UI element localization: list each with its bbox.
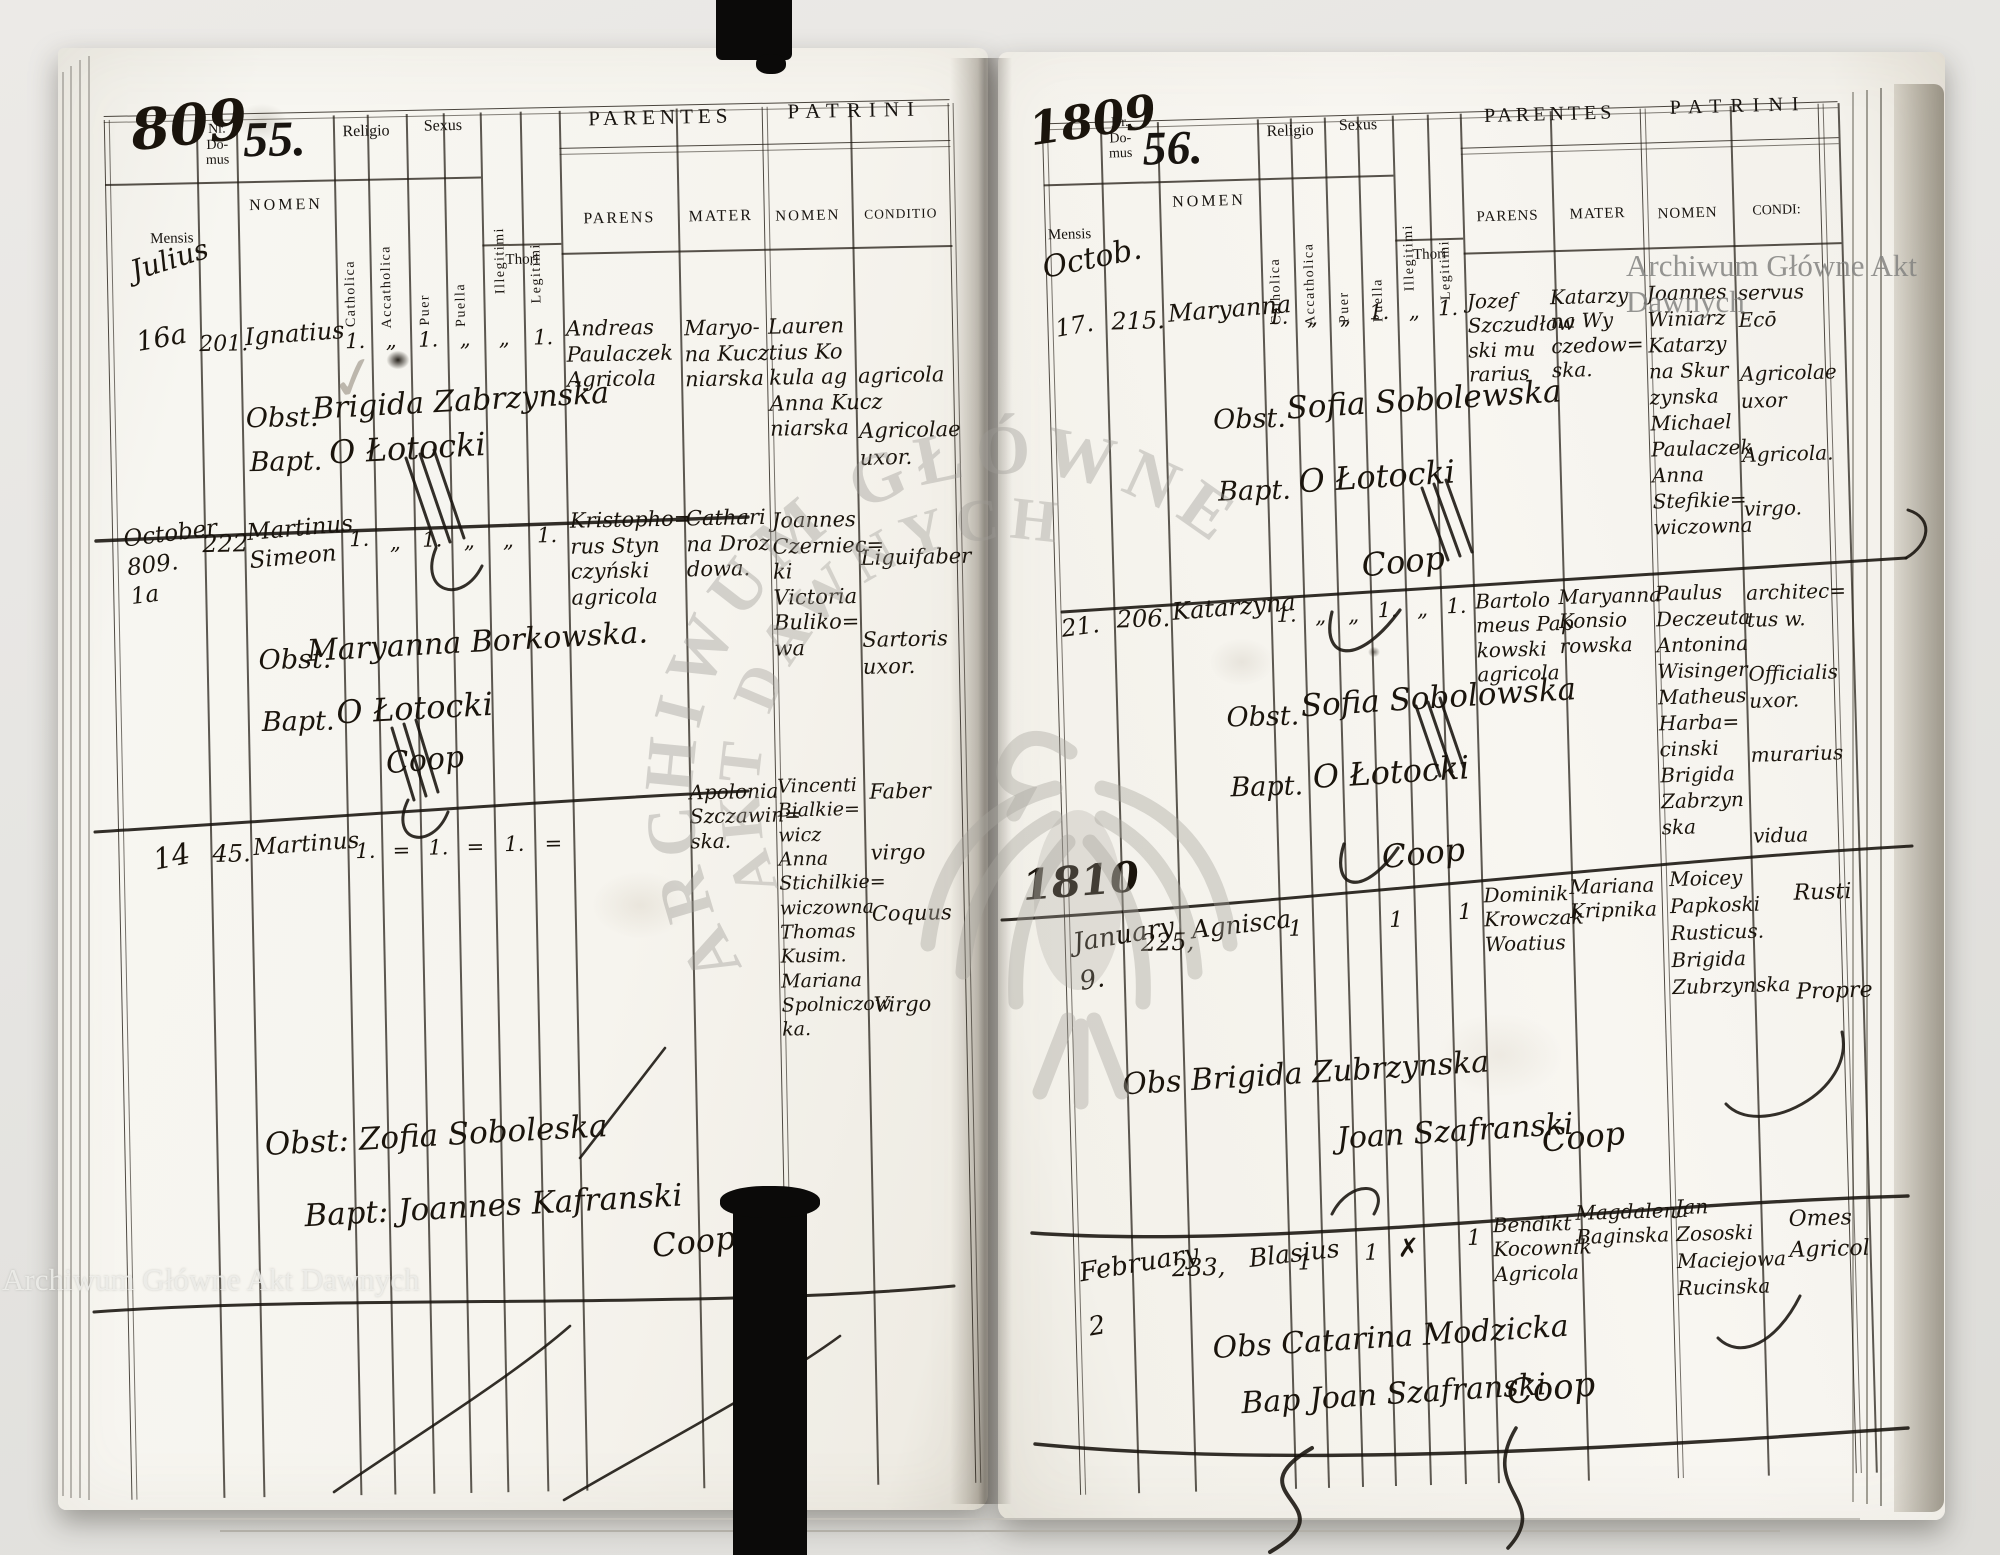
mark-puer: 1.: [413, 327, 444, 353]
entry-dies: 14: [150, 836, 193, 878]
mark-puer: 1.: [423, 835, 454, 861]
left-page-table: 809 Nr. Do- mus 55. Religio Sexus Illegi…: [99, 44, 1028, 1522]
mark-illegitimi: „: [1407, 597, 1438, 623]
obstetrix-label: Obst.: [245, 402, 318, 436]
col-header-patrini-nomen: NOMEN: [1642, 204, 1732, 223]
book-spine-top-nub: [756, 54, 786, 74]
right-page-table: 1809 Nr. Do- mus 56. Religio Sexus Illeg…: [998, 34, 1983, 1515]
entry-house-number: 201.: [199, 331, 249, 359]
entry-patrini-names: Paulus Deczeuta Antonina Wisinger Matheu…: [1655, 578, 1757, 841]
mark-legitimi: 1.: [1441, 594, 1472, 620]
obstetrix-label: Obst.: [1226, 700, 1300, 735]
entry-patrini-conditio: Faber virgo Coquus Virgo: [869, 775, 954, 1020]
baptizans-label: Bapt.: [1218, 475, 1292, 510]
mark-puella-cross: ✗: [1393, 1233, 1424, 1266]
col-header-nomen: NOMEN: [1159, 191, 1259, 212]
col-header-patrini: PATRINI: [1639, 92, 1838, 120]
column-line: [520, 112, 549, 1492]
mark-illegitimi: 1.: [499, 832, 530, 858]
book-spine-top: [716, 0, 792, 60]
mark-catholica: 1.: [1271, 602, 1302, 628]
entry-patrini-conditio: Omes Agricol: [1788, 1203, 1870, 1267]
entry-mater: Maryo- na Kucz niarska: [684, 315, 770, 394]
mark-puella: 1.: [1372, 598, 1403, 624]
record-number: 55.: [243, 110, 307, 167]
mark-catholica: 1.: [340, 329, 371, 355]
entry-house-number: 225,: [1140, 927, 1194, 958]
entry-mater: Cathari na Droz dowa.: [686, 505, 771, 583]
col-header-mater: MATER: [678, 207, 764, 227]
col-header-accatholica: Accatholica: [377, 192, 396, 328]
mark-legitimi: 1: [1450, 899, 1481, 927]
entry-patrini-names: Moicey Papkoski Rusticus. Brigida Zubrzy…: [1669, 863, 1791, 1001]
baptizans-label: Bapt.: [262, 706, 335, 740]
page-stack-edge: [70, 66, 72, 1498]
header-rule: [1044, 175, 1394, 186]
coop-signature: Coop: [1540, 1114, 1627, 1161]
coop-signature: Coop: [1505, 1364, 1597, 1414]
mark-illegitimi: „: [489, 326, 520, 352]
page-stack-bottom-edge: [140, 1518, 1860, 1520]
entry-mater: Magdalena Baginska: [1575, 1198, 1689, 1250]
mark-accatholica: „: [1305, 603, 1336, 629]
entry-house-number: 233,: [1171, 1253, 1225, 1284]
col-header-puer: Puer: [417, 259, 434, 325]
page-stack-bottom-edge: [220, 1530, 1780, 1532]
entry-dies: February 2: [1075, 1227, 1212, 1355]
mark-catholica: 1: [1280, 916, 1311, 944]
header-rule: [562, 245, 953, 254]
mark-catholica: 1.: [1263, 304, 1294, 330]
entry-name: Martinus Simeon: [246, 510, 357, 575]
mark-puella: 1: [1381, 907, 1412, 935]
header-rule: [1464, 242, 1842, 254]
page-stack-edge: [79, 60, 81, 1498]
entry-patrini-conditio: Rusti Propre: [1793, 875, 1873, 1009]
column-line: [480, 112, 509, 1492]
col-header-illegitimi: Illegitimi: [1398, 141, 1418, 291]
baptizans-name: O Łotocki: [328, 425, 487, 473]
coop-signature: Coop: [1380, 830, 1467, 877]
entry-patrini-conditio: servus Ecō Agricolae uxor Agricola. virg…: [1737, 277, 1840, 523]
col-header-sexus: Sexus: [406, 116, 480, 135]
mark-puella: „: [450, 327, 481, 353]
col-header-thori: Thori: [1395, 246, 1463, 265]
col-header-conditio: CONDI:: [1732, 202, 1820, 220]
year-divider: 1810: [1020, 851, 1141, 911]
mark-puer: „: [1330, 305, 1361, 331]
folio-number: 1809: [1025, 83, 1160, 158]
coop-signature: Coop: [650, 1218, 737, 1266]
col-header-legitimi: Legitimi: [526, 143, 545, 303]
entry-dies: 21.: [1060, 610, 1102, 644]
column-line: [196, 118, 225, 1498]
entry-house-number: 215.: [1111, 306, 1165, 337]
header-rule: [559, 140, 950, 155]
col-header-nomen: NOMEN: [237, 195, 334, 215]
baptizans-name: O Łotocki: [335, 685, 494, 733]
mark-puer: „: [1338, 602, 1369, 628]
obstetrix-label: Obst.: [1213, 403, 1287, 438]
obstetrix-name: Sofia Sobolewska: [1285, 373, 1562, 428]
lower-obstetrix-note: Obst: Zofia Soboleska: [264, 1108, 609, 1165]
entry-parens: Kristopho= rus Styn czyński agricola: [570, 506, 694, 611]
page-stack-edge: [88, 56, 90, 1500]
record-number: 56.: [1142, 121, 1203, 176]
col-header-conditio: CONDITIO: [852, 205, 950, 222]
mark-accatholica: =: [386, 838, 417, 864]
entry-patrini-conditio: architec= tus w. Officialis uxor. murari…: [1746, 577, 1853, 850]
col-header-patrini: PATRINI: [762, 97, 948, 124]
col-header-patrini-nomen: NOMEN: [764, 207, 852, 226]
baptizans-name: O Łotocki: [1297, 453, 1456, 502]
col-header-parentes: PARENTES: [559, 104, 762, 132]
coop-signature: Coop: [1360, 539, 1447, 586]
register-scan: 809 Nr. Do- mus 55. Religio Sexus Illegi…: [0, 0, 2000, 1555]
entry-house-number: 206.: [1116, 604, 1170, 635]
lower-baptizans-note: Bapt: Joannes Kafranski: [303, 1177, 683, 1236]
mark-accatholica: „: [1297, 305, 1328, 331]
book-spine-bottom-nub: [720, 1186, 820, 1218]
baptizans-note: Joan Szafranski: [1336, 1107, 1575, 1158]
column-line: [948, 103, 982, 1483]
col-header-legitimi: Legitimi: [1435, 150, 1455, 300]
col-header-nr-domus: Nr. Do- mus: [1102, 115, 1139, 163]
mark-accatholica: „: [376, 328, 407, 354]
mark-accatholica: „: [380, 530, 411, 556]
mark-puer: 1: [1356, 1240, 1387, 1268]
entry-patrini-names: Jan Zososki Maciejowa Rucinska: [1675, 1191, 1787, 1302]
mark-puella: =: [460, 834, 491, 860]
col-header-religio: Religio: [326, 122, 406, 142]
col-header-catholica: Catholica: [341, 203, 359, 327]
baptizans-label: Bapt.: [249, 446, 322, 480]
obstetrix-note: Obs Brigida Zubrzynska: [1121, 1044, 1490, 1104]
col-header-mater: MATER: [1552, 205, 1642, 224]
coop-signature: Coop: [384, 740, 465, 783]
entry-name: Agnisca: [1190, 904, 1293, 946]
entry-patrini-conditio: Liguifaber Sartoris uxor.: [860, 543, 973, 682]
mark-puella: 1.: [1364, 300, 1395, 326]
header-rule: [1461, 137, 1839, 155]
mark-legitimi: 1.: [532, 523, 563, 549]
entry-dies: 17.: [1053, 309, 1096, 344]
col-header-sexus: Sexus: [1324, 116, 1392, 136]
obstetrix-name: Sofia Sobolowska: [1300, 671, 1577, 726]
col-header-religio: Religio: [1250, 121, 1330, 141]
mark-legitimi: 1.: [528, 325, 559, 351]
mark-catholica: 1: [1289, 1250, 1320, 1278]
col-header-parens: PARENS: [561, 209, 678, 229]
mark-puer: 1.: [417, 527, 448, 553]
entry-mater: Katarzy na Wy czedow= ska.: [1550, 283, 1645, 383]
entry-dies: October 809. 1a: [122, 514, 226, 611]
mark-catholica: 1.: [344, 527, 375, 553]
mark-legitimi: =: [538, 831, 569, 857]
entry-dies: 16a: [134, 319, 189, 360]
mark-legitimi: 1: [1459, 1225, 1490, 1253]
mark-catholica: 1.: [350, 839, 381, 865]
col-header-parens: PARENS: [1462, 207, 1552, 226]
col-header-puella: Puella: [452, 253, 469, 327]
header-rule: [105, 176, 481, 185]
book-spine-bottom: [733, 1192, 807, 1555]
col-header-thori: Thori: [482, 251, 561, 269]
obstetrix-name: Maryanna Borkowska.: [306, 615, 649, 670]
mark-illegitimi: „: [493, 528, 524, 554]
mark-illegitimi: „: [1399, 299, 1430, 325]
entry-mater: Maryanna Konsio rowska: [1558, 582, 1663, 658]
col-header-nr-domus: Nr. Do- mus: [199, 121, 236, 169]
mark-puella: „: [454, 528, 485, 554]
baptizans-label: Bapt.: [1230, 770, 1304, 805]
entry-house-number: 222: [202, 529, 248, 559]
entry-name: Martinus: [252, 827, 360, 863]
col-header-parentes: PARENTES: [1459, 101, 1640, 128]
page-stack-edge: [62, 72, 64, 1496]
entry-mater: Mariana Kripnika: [1569, 873, 1657, 924]
entry-patrini-conditio: agricola Agricolae uxor.: [858, 361, 962, 472]
mark-legitimi: 1.: [1433, 296, 1464, 322]
col-header-illegitimi: Illegitimi: [490, 134, 509, 294]
entry-house-number: 45.: [212, 839, 251, 869]
